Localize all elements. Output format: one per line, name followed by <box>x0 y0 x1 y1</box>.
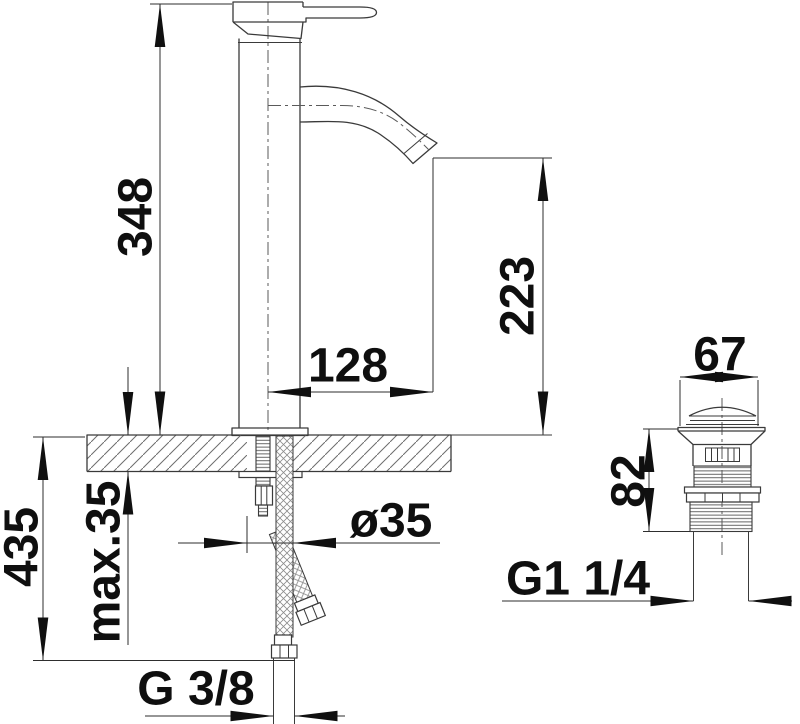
supply-hose-main <box>272 436 298 724</box>
arrow-left <box>293 538 336 549</box>
arrow-down <box>123 392 134 435</box>
main-hose-braid <box>276 436 293 637</box>
dim-128: 128 <box>268 158 433 397</box>
arrow-down <box>38 618 49 661</box>
dim-o35-label: ø35 <box>350 494 433 547</box>
arrow-down <box>155 392 166 435</box>
arrow-up <box>38 437 49 480</box>
dim-348-label: 348 <box>109 177 162 257</box>
dim-max35-label: max.35 <box>77 481 130 644</box>
dim-g114-label: G1 1/4 <box>506 552 650 605</box>
drain-tailpipe-edges <box>694 532 749 602</box>
arrow-right <box>204 538 247 549</box>
arrow-left <box>295 711 338 722</box>
dim-82: 82 <box>602 429 690 532</box>
dim-128-label: 128 <box>308 339 388 392</box>
drain-valve-figure <box>678 398 765 601</box>
arrow-right <box>390 387 433 398</box>
spout-outline <box>300 86 437 163</box>
drain-collar <box>685 487 761 493</box>
dim-g38: G 3/8 <box>137 662 345 721</box>
drain-overflow-slot-bars <box>712 448 735 462</box>
arrow-right <box>651 596 694 607</box>
technical-drawing: 348 223 128 ø35 max.35 <box>0 0 800 724</box>
deck-hatch-left <box>87 435 247 472</box>
dim-223: 223 <box>433 158 552 435</box>
faucet-handle <box>233 2 377 43</box>
dim-435-label: 435 <box>0 507 48 587</box>
dim-67-label: 67 <box>693 328 746 381</box>
dim-82-label: 82 <box>602 454 655 507</box>
arrow-up <box>538 158 549 201</box>
drain-upper-thread <box>694 466 751 487</box>
faucet-body <box>232 39 308 436</box>
arrow-up <box>155 4 166 47</box>
countertop <box>87 435 552 472</box>
drawing-page: 348 223 128 ø35 max.35 <box>0 0 800 724</box>
main-hose-nut <box>272 645 298 658</box>
deck-hatch-right <box>293 435 451 472</box>
handle-lever-outline <box>233 2 377 22</box>
arrow-left <box>749 596 792 607</box>
arrow-down <box>538 392 549 435</box>
main-hose-ferrule <box>275 635 292 645</box>
faucet-spout <box>268 86 437 163</box>
drain-lower-thread <box>690 502 752 532</box>
mounting-nut <box>256 486 273 505</box>
mounting-stud-tip <box>259 505 268 516</box>
spout-centerline <box>268 106 429 151</box>
mounting-stud-thread <box>256 436 270 486</box>
arrow-left <box>268 387 311 398</box>
dim-g38-label: G 3/8 <box>137 662 254 715</box>
dim-hole-diameter: ø35 <box>178 494 440 553</box>
dim-223-label: 223 <box>491 256 544 336</box>
dim-max35: max.35 <box>77 367 133 645</box>
body-tube-outline <box>239 39 300 429</box>
